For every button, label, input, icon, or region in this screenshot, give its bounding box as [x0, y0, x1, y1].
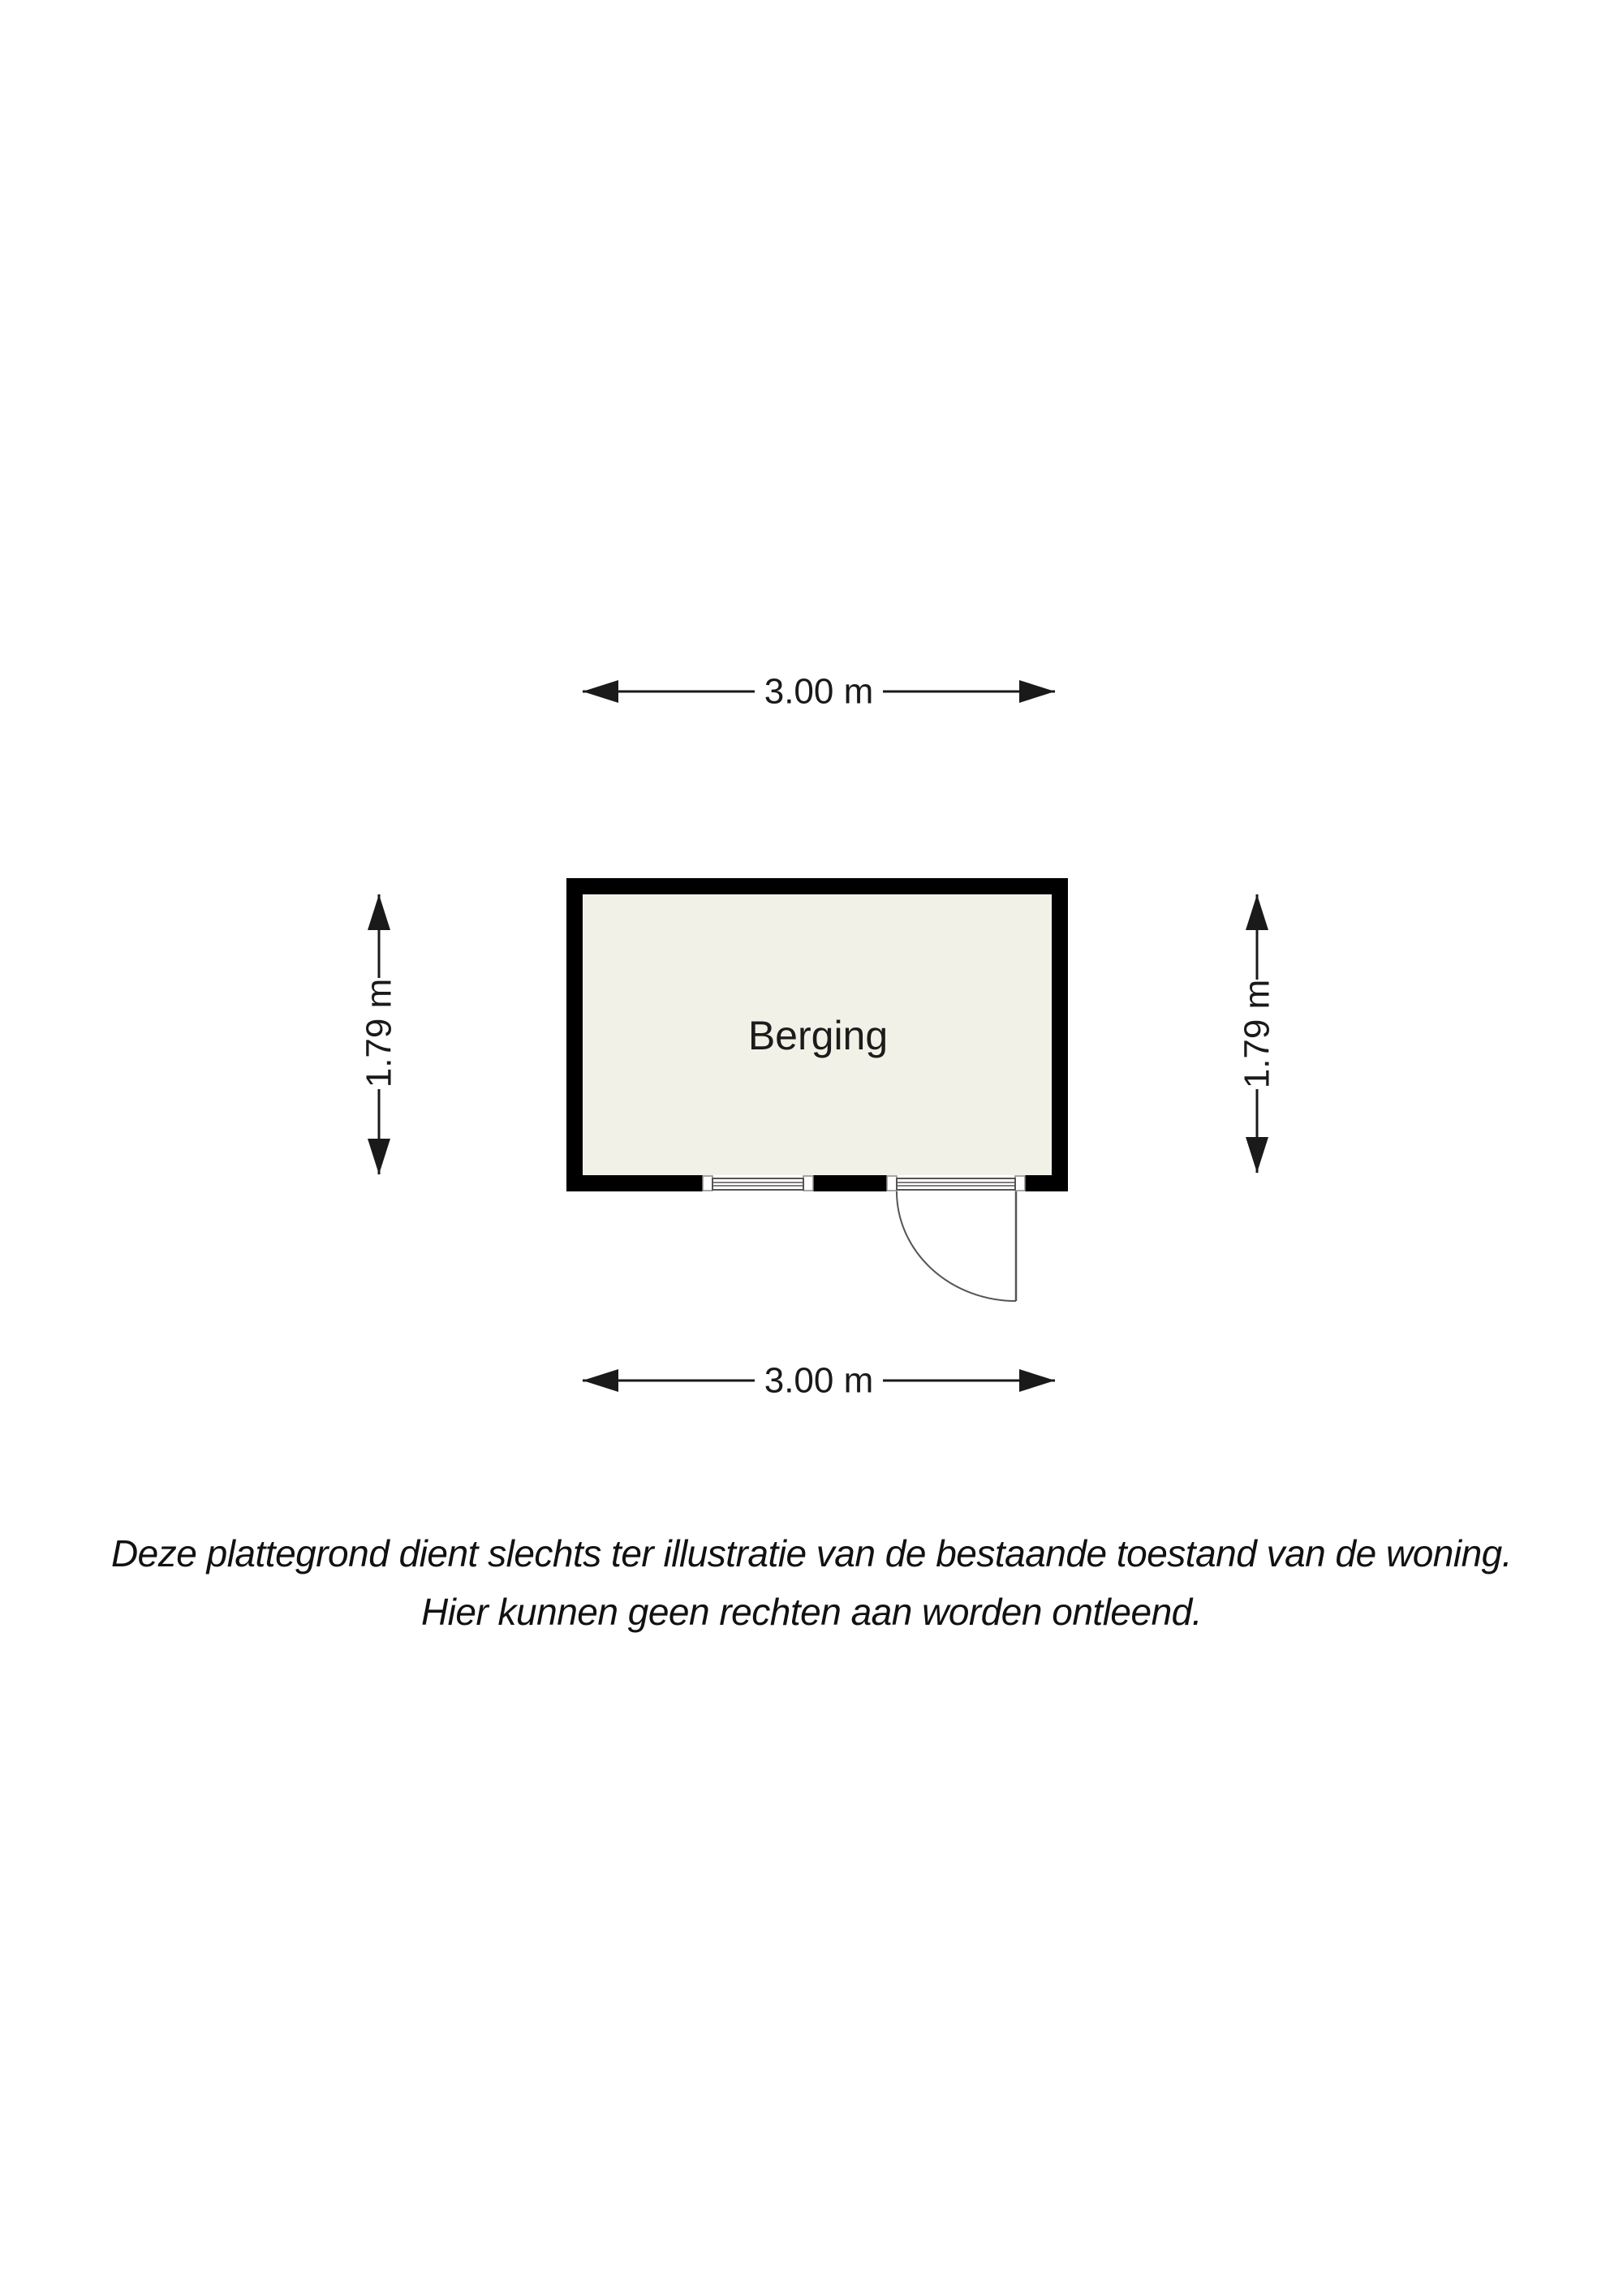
room-berging: Berging — [566, 878, 1068, 1191]
arrowhead-up-icon — [368, 894, 390, 930]
door-frame — [897, 1178, 1015, 1190]
window-frame — [712, 1178, 803, 1190]
arrowhead-left-icon — [583, 680, 618, 703]
dimension-left-label: 1.79 m — [359, 979, 399, 1088]
dimension-top-label: 3.00 m — [764, 672, 874, 712]
door-swing-arc — [897, 1191, 1016, 1301]
dimension-top: 3.00 m — [583, 672, 1055, 712]
dimension-bottom-label: 3.00 m — [764, 1361, 874, 1401]
arrowhead-left-icon — [583, 1369, 618, 1392]
door — [887, 1175, 1025, 1301]
arrowhead-right-icon — [1019, 680, 1055, 703]
disclaimer-line-1: Deze plattegrond dient slechts ter illus… — [0, 1524, 1623, 1583]
floorplan-drawing: 3.00 m Berging — [0, 0, 1623, 2296]
window-jamb-left — [703, 1176, 712, 1191]
dimension-left: 1.79 m — [359, 894, 399, 1174]
arrowhead-down-icon — [368, 1139, 390, 1174]
arrowhead-up-icon — [1246, 894, 1268, 930]
window — [703, 1175, 813, 1191]
door-jamb-right — [1015, 1176, 1025, 1191]
arrowhead-right-icon — [1019, 1369, 1055, 1392]
arrowhead-down-icon — [1246, 1137, 1268, 1173]
dimension-right-label: 1.79 m — [1238, 980, 1277, 1089]
door-jamb-left — [887, 1176, 897, 1191]
window-jamb-right — [803, 1176, 813, 1191]
dimension-right: 1.79 m — [1238, 894, 1277, 1173]
disclaimer: Deze plattegrond dient slechts ter illus… — [0, 1524, 1623, 1641]
room-label: Berging — [748, 1013, 888, 1058]
floorplan-page: 3.00 m Berging — [0, 0, 1623, 2296]
disclaimer-line-2: Hier kunnen geen rechten aan worden ontl… — [0, 1583, 1623, 1641]
dimension-bottom: 3.00 m — [583, 1361, 1055, 1401]
